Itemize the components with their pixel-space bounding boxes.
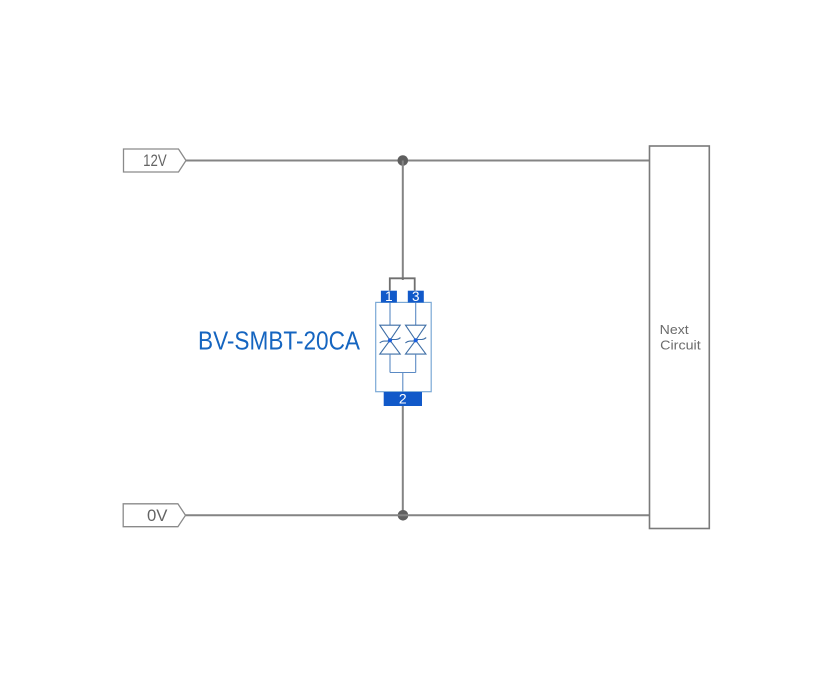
svg-text:3: 3 xyxy=(412,289,420,304)
svg-text:Next: Next xyxy=(660,322,689,337)
svg-text:Circuit: Circuit xyxy=(660,338,701,353)
svg-text:BV-SMBT-20CA: BV-SMBT-20CA xyxy=(198,326,361,356)
svg-text:2: 2 xyxy=(399,391,407,407)
svg-text:1: 1 xyxy=(385,289,393,304)
svg-text:12V: 12V xyxy=(143,151,167,170)
svg-text:0V: 0V xyxy=(147,506,168,525)
